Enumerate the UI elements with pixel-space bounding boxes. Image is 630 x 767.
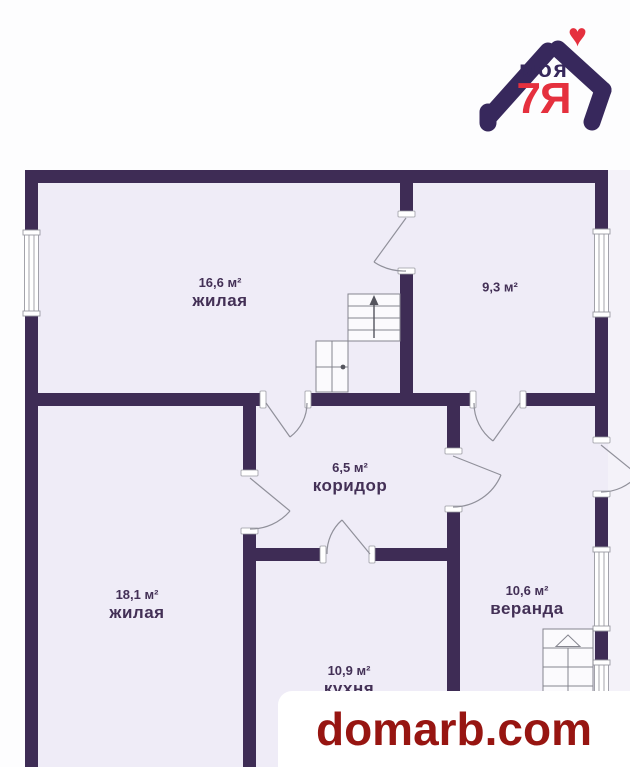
room-name: жилая	[192, 291, 247, 310]
window-veranda-upper	[593, 547, 610, 631]
room-area: 18,1 м²	[109, 588, 164, 603]
room-label-room-right: 9,3 м²	[482, 281, 518, 296]
room-area: 10,6 м²	[490, 584, 564, 599]
room-area: 16,6 м²	[192, 276, 247, 291]
room-label-living-bottom: 18,1 м² жилая	[109, 588, 164, 622]
window-left-living	[23, 230, 40, 316]
window-right-room	[593, 229, 610, 317]
room-name: веранда	[490, 599, 564, 618]
room-label-living-top: 16,6 м² жилая	[192, 276, 247, 310]
room-name: коридор	[313, 476, 388, 495]
room-label-corridor: 6,5 м² коридор	[313, 461, 388, 495]
logo-text-7ya: 7Я	[496, 74, 591, 124]
moya7ya-logo: ♥ моя 7Я	[468, 16, 630, 146]
entry-steps	[543, 629, 593, 695]
watermark-banner: domarb.com	[278, 691, 630, 767]
room-area: 10,9 м²	[324, 664, 374, 679]
floorplan-screenshot: 16,6 м² жилая 9,3 м² 6,5 м² коридор 18,1…	[0, 0, 630, 767]
room-label-veranda: 10,6 м² веранда	[490, 584, 564, 618]
room-area: 6,5 м²	[313, 461, 388, 476]
room-area: 9,3 м²	[482, 281, 518, 296]
heart-icon: ♥	[568, 17, 587, 54]
watermark-text: domarb.com	[316, 702, 592, 756]
room-name: жилая	[109, 603, 164, 622]
